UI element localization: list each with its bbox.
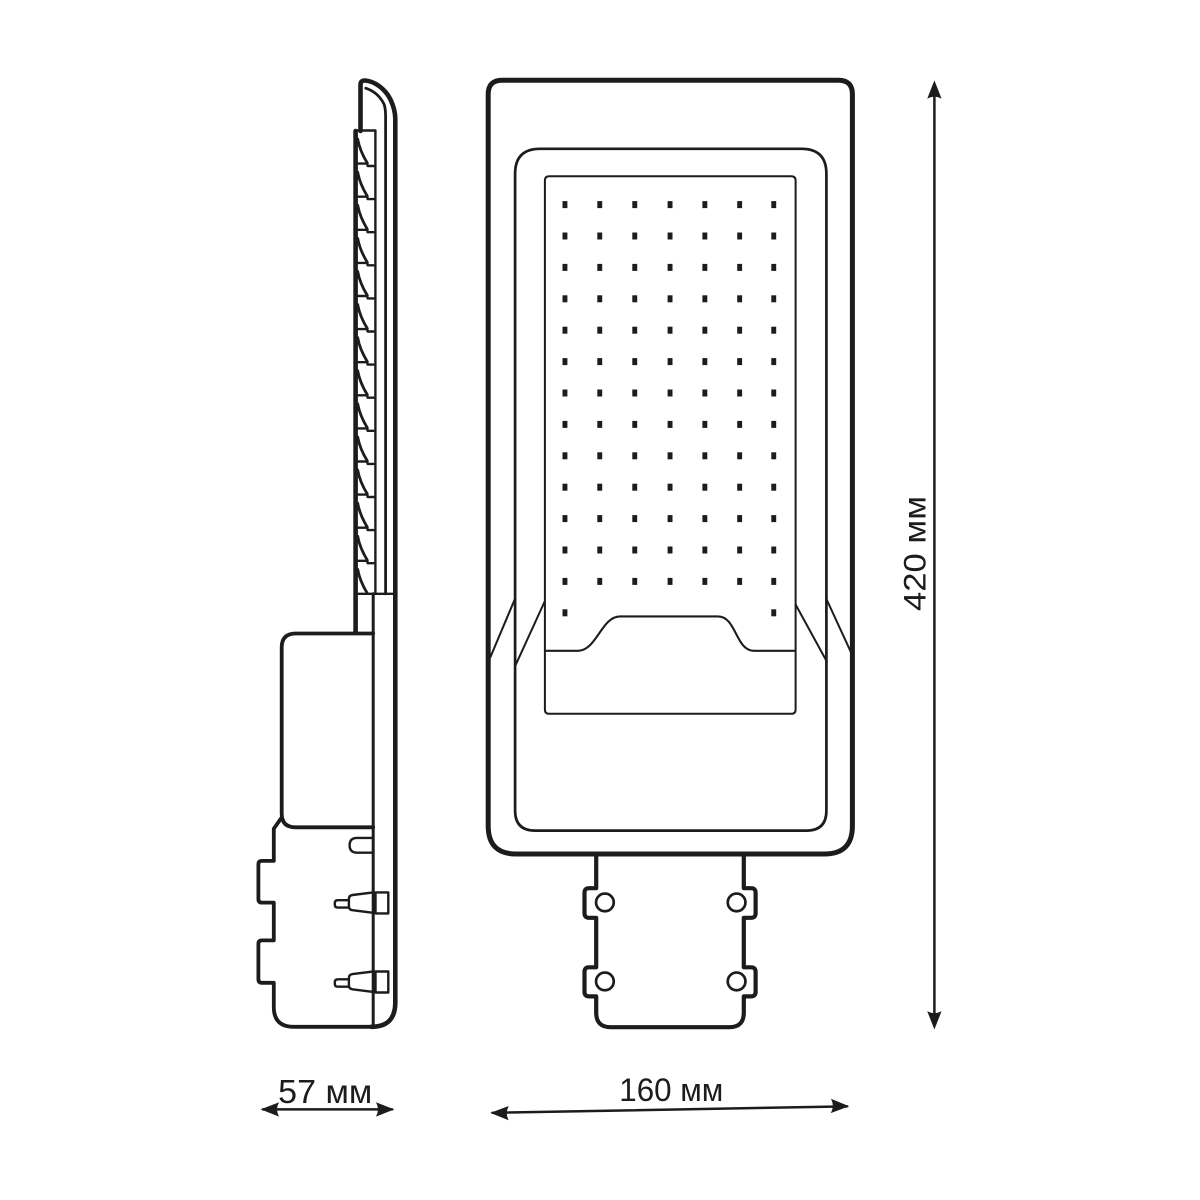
svg-text:420 мм: 420 мм	[896, 496, 932, 611]
svg-text:57 мм: 57 мм	[278, 1073, 372, 1110]
svg-text:160 мм: 160 мм	[619, 1072, 723, 1108]
